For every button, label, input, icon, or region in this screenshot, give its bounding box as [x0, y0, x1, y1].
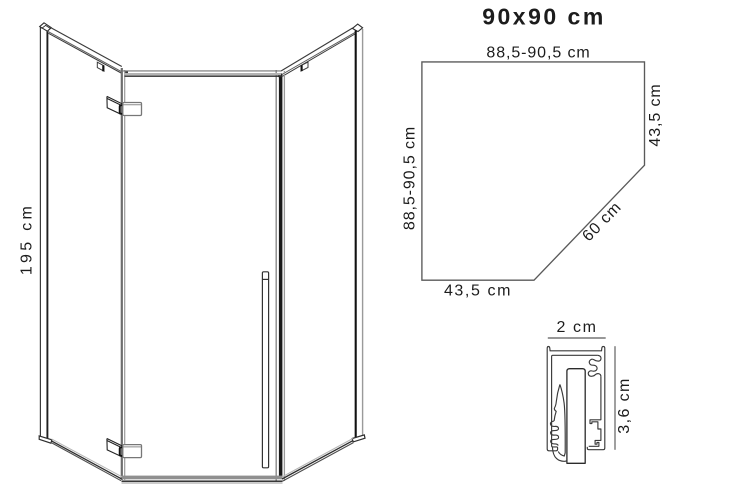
svg-text:2 cm: 2 cm [556, 319, 597, 336]
svg-text:3,6 cm: 3,6 cm [616, 377, 633, 433]
svg-text:43,5 cm: 43,5 cm [444, 283, 512, 300]
svg-text:43,5 cm: 43,5 cm [647, 83, 664, 146]
svg-text:90x90 cm: 90x90 cm [482, 3, 606, 29]
svg-text:88,5-90,5 cm: 88,5-90,5 cm [402, 126, 419, 230]
svg-text:195 cm: 195 cm [19, 203, 36, 275]
svg-text:88,5-90,5 cm: 88,5-90,5 cm [486, 45, 590, 62]
